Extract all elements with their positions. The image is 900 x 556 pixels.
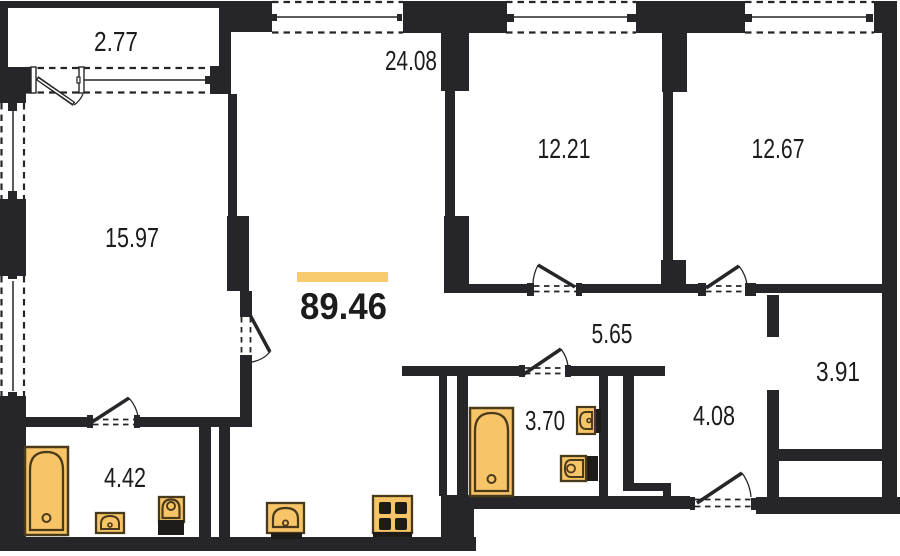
svg-text:12.67: 12.67 (752, 133, 805, 164)
svg-text:89.46: 89.46 (300, 285, 387, 327)
svg-text:5.65: 5.65 (592, 318, 633, 349)
svg-text:2.77: 2.77 (94, 26, 138, 57)
svg-text:12.21: 12.21 (538, 133, 591, 164)
svg-text:15.97: 15.97 (105, 222, 159, 253)
svg-text:4.42: 4.42 (104, 462, 146, 493)
svg-text:24.08: 24.08 (385, 45, 437, 76)
svg-text:3.91: 3.91 (816, 356, 860, 387)
svg-text:3.70: 3.70 (525, 405, 565, 436)
svg-text:4.08: 4.08 (693, 400, 735, 431)
